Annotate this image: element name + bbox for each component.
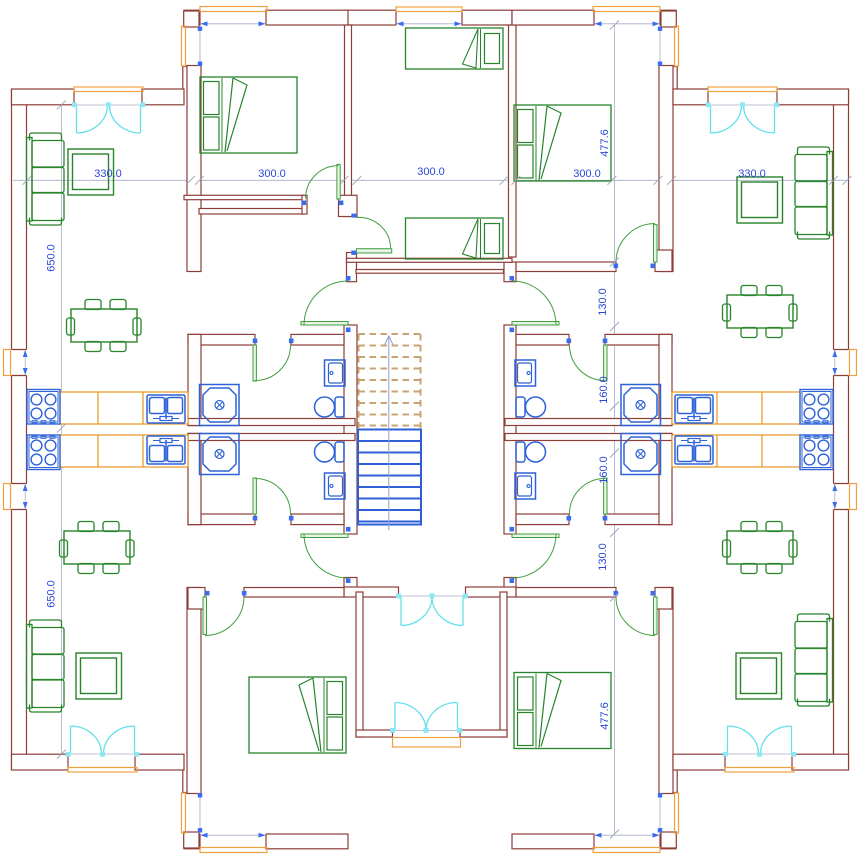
svg-text:330.0: 330.0 [94, 168, 122, 180]
svg-text:477.6: 477.6 [599, 129, 611, 157]
svg-text:650.0: 650.0 [46, 244, 58, 272]
svg-text:160.0: 160.0 [598, 456, 610, 484]
svg-text:300.0: 300.0 [573, 168, 601, 180]
svg-text:160.0: 160.0 [598, 376, 610, 404]
svg-text:650.0: 650.0 [46, 580, 58, 608]
svg-text:300.0: 300.0 [417, 166, 445, 178]
svg-text:330.0: 330.0 [738, 168, 766, 180]
svg-text:300.0: 300.0 [258, 168, 286, 180]
svg-text:130.0: 130.0 [597, 543, 609, 571]
svg-text:477.6: 477.6 [599, 702, 611, 730]
svg-text:130.0: 130.0 [597, 288, 609, 316]
